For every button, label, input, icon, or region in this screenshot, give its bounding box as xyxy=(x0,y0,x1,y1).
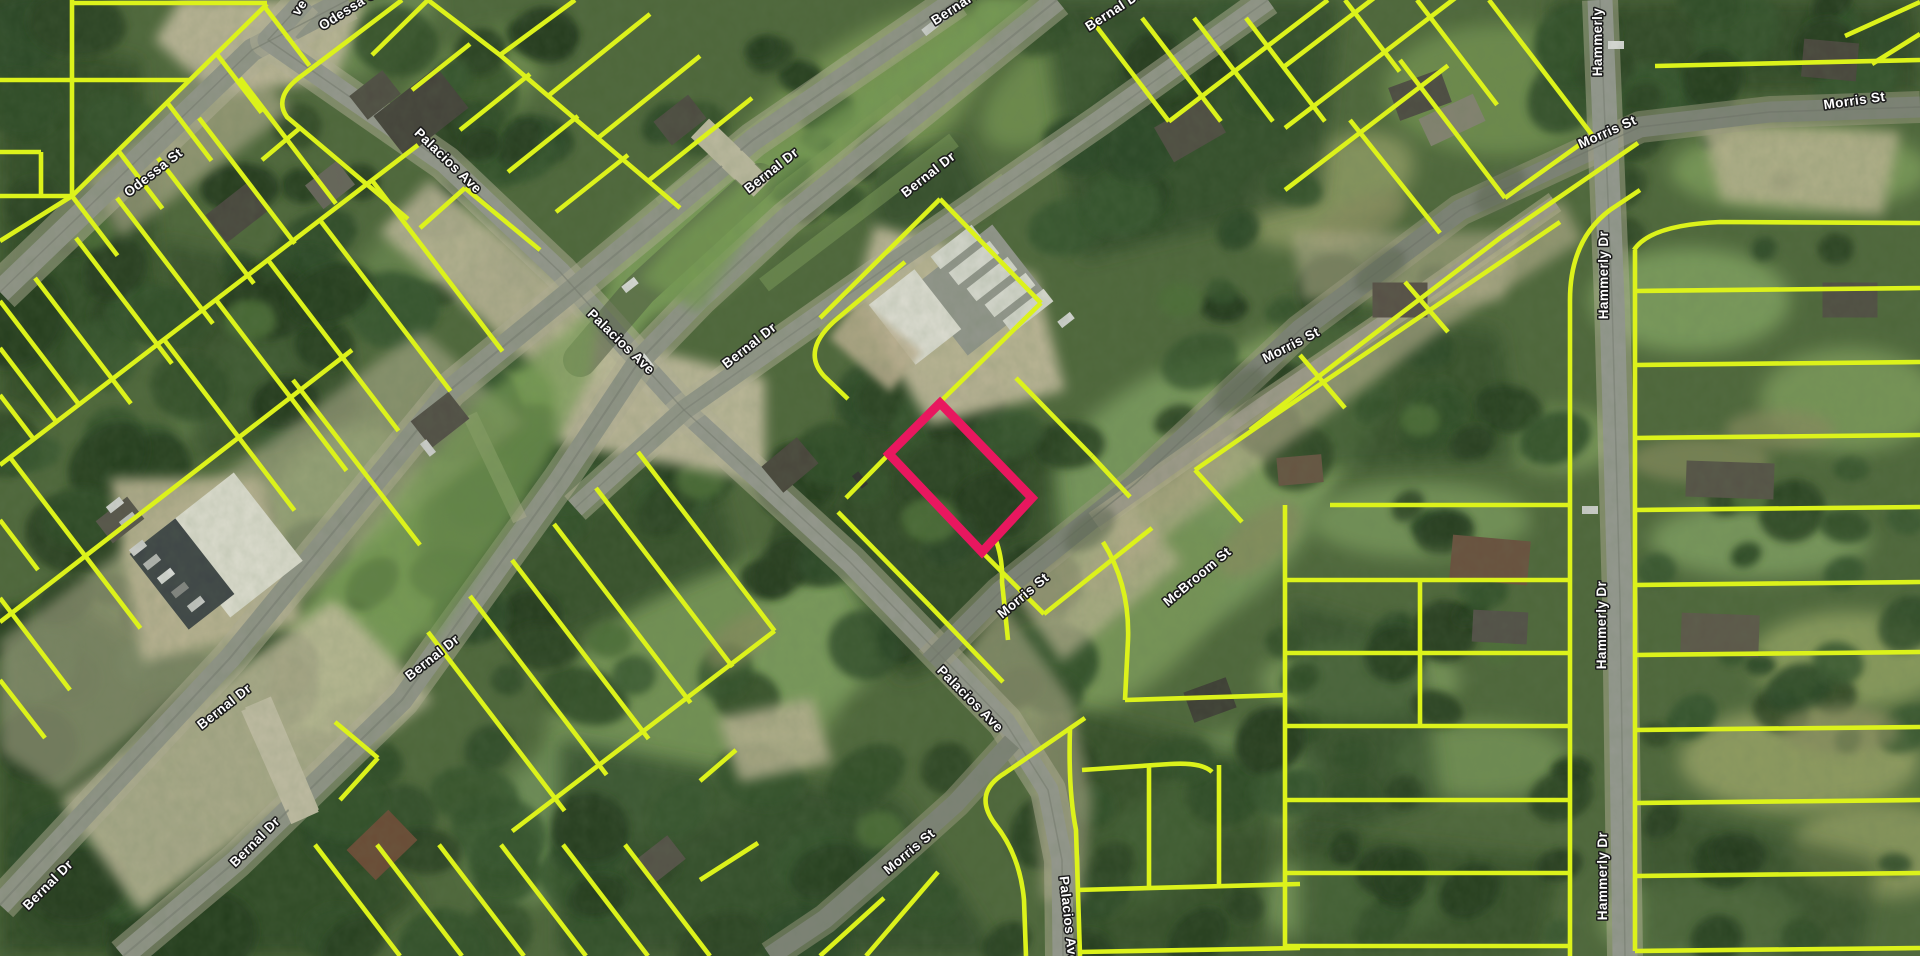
svg-text:Hammerly: Hammerly xyxy=(1590,8,1605,77)
svg-text:Hammerly Dr: Hammerly Dr xyxy=(1595,831,1610,920)
svg-text:Hammerly Dr: Hammerly Dr xyxy=(1594,580,1609,669)
svg-text:Hammerly Dr: Hammerly Dr xyxy=(1596,230,1611,319)
